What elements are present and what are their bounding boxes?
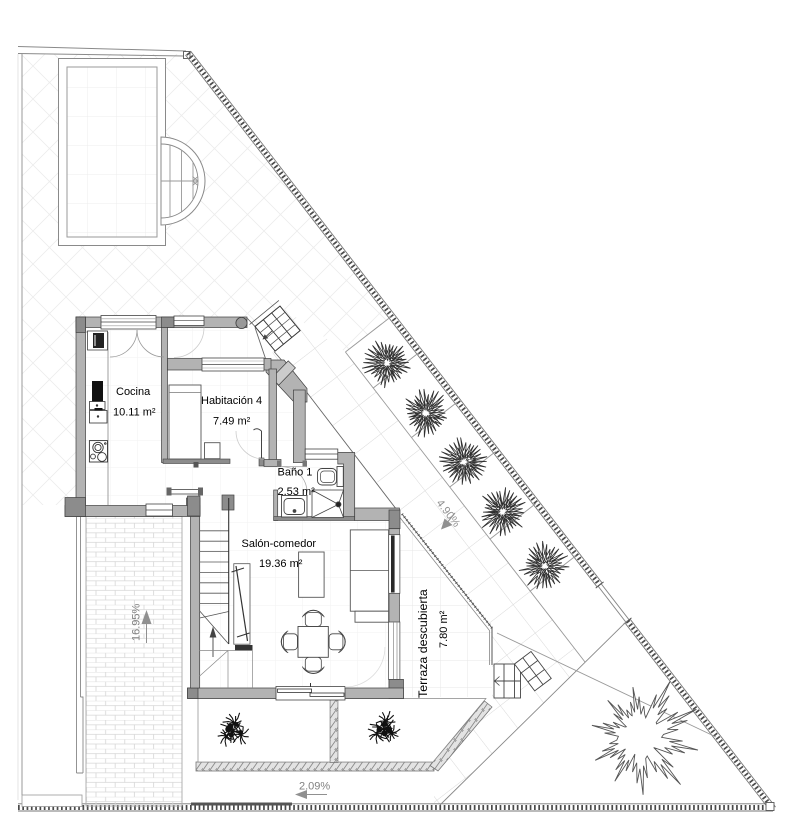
svg-text:10.11 m²: 10.11 m² (113, 407, 156, 419)
svg-text:Cocina: Cocina (116, 386, 151, 398)
svg-text:7.80 m²: 7.80 m² (438, 610, 450, 648)
svg-text:7.49 m²: 7.49 m² (213, 416, 251, 428)
svg-text:Habitación 4: Habitación 4 (201, 395, 262, 407)
svg-text:2.53 m²: 2.53 m² (278, 486, 316, 498)
svg-text:Baño 1: Baño 1 (278, 467, 313, 479)
svg-text:2.09%: 2.09% (299, 781, 330, 793)
svg-text:16.95%: 16.95% (131, 603, 143, 641)
svg-text:19.36 m²: 19.36 m² (259, 558, 303, 570)
svg-text:Salón-comedor: Salón-comedor (242, 538, 317, 550)
svg-text:Terraza descubierta: Terraza descubierta (416, 589, 430, 698)
